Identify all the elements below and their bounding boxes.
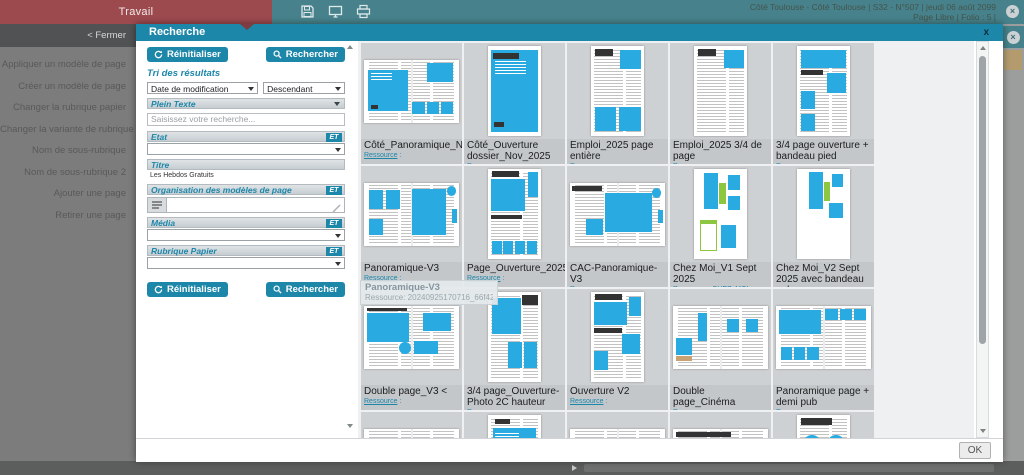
template-label: 3/4 page ouverture + bandeau piedRessour… [773,139,874,164]
preview-block [495,61,526,75]
template-card[interactable]: Panoramique page + demi pubRessource : [773,289,874,410]
sidebar-close-button[interactable]: < Fermer [0,24,136,47]
preview-block [386,190,400,209]
bottom-scrollbar [0,461,1024,475]
preview-block [698,313,708,341]
template-card[interactable]: CAC-Panoramique-V3Ressource : [567,166,668,287]
save-icon[interactable] [300,4,316,20]
preview-block [676,356,692,361]
template-card[interactable]: Page_Ouverture_2025Ressource : [464,166,565,287]
sidebar-item[interactable]: Changer la rubrique papier [0,97,136,119]
ressource-link[interactable]: Ressource : [570,285,665,287]
preview-block [704,173,718,209]
template-name: CAC-Panoramique-V3 [570,263,657,285]
preview-block [801,91,815,109]
template-results-grid: Côté_Panoramique_NovRessource :Côté_Ouve… [358,41,974,438]
preview-block [700,220,717,251]
preview-block [412,102,424,113]
refresh-icon [154,50,163,59]
template-label: Côté_Ouverture dossier_Nov_2025Ressource… [464,139,565,164]
close-app-icon[interactable]: × [1006,5,1019,18]
print-icon[interactable] [356,4,372,20]
preview-block [746,319,757,332]
dialog-footer: OK [136,438,1003,462]
display-icon[interactable] [328,4,344,20]
rubrique-select[interactable] [147,257,345,269]
tab-travail[interactable]: Travail [0,0,272,24]
preview-block [809,172,823,210]
preview-block [801,50,847,68]
template-preview [567,43,668,139]
chevron-down-icon [335,87,341,91]
preview-block [572,186,602,190]
template-preview [361,412,462,438]
template-name: Emploi_2025 page entière [570,140,653,162]
recherche-dialog: Recherche x Réinitialiser Rechercher Tri… [136,24,1003,461]
template-name: Chez Moi_V1 Sept 2025 [673,263,756,285]
sidebar-item[interactable]: Changer la variante de rubrique [0,119,136,141]
preview-block [527,241,537,254]
etat-select[interactable] [147,143,345,155]
template-name: Double page_V3 < [364,386,447,397]
template-card[interactable]: Ouverture V2Ressource : [567,289,668,410]
ressource-link[interactable]: Ressource : [570,397,665,406]
preview-block [594,328,622,333]
preview-block [515,241,525,254]
preview-block [827,73,846,93]
preview-block [524,342,538,367]
document-context-info: Côté Toulouse - Côté Toulouse | S32 - N°… [750,2,996,22]
section-media[interactable]: MédiaET [147,217,345,228]
template-name: Chez Moi_V2 Sept 2025 avec bandeau pub [776,263,864,287]
preview-block [369,190,383,209]
chevron-down-icon [335,234,341,238]
preview-block [427,102,439,113]
preview-block [594,302,626,325]
preview-block [840,309,852,320]
preview-block [728,196,740,210]
wand-icon[interactable] [332,200,342,218]
scrollbar-thumb[interactable] [979,56,986,344]
operator-badge[interactable]: ET [326,219,342,228]
template-card[interactable]: Chez Moi_V1 Sept 2025Ressource : CHEZ_MO… [670,166,771,287]
preview-block [676,338,692,354]
template-preview [670,166,771,262]
sidebar-menu: Appliquer un modèle de pageCréer un modè… [0,47,136,226]
template-label: 3/4 page_Ouverture-Photo 2C hauteurResso… [464,385,565,410]
template-name: Panoramique page + demi pub [776,386,869,408]
preview-block [423,313,452,331]
titre-value: Les Hebdos Gratuits [147,172,345,180]
template-tooltip: Panoramique-V3 Ressource: 20240925170716… [360,280,498,305]
preview-block [825,309,837,320]
template-label: Côté_Panoramique_NovRessource : [361,139,462,164]
operator-badge[interactable]: ET [326,186,342,195]
preview-block [367,313,409,342]
template-name: Panoramique-V3 [364,263,439,274]
template-preview [361,166,462,262]
close-icon: × [1007,31,1020,44]
background-panel [1003,24,1024,461]
template-label: Panoramique page + demi pubRessource : [773,385,874,410]
section-etat[interactable]: EtatET [147,131,345,142]
section-titre[interactable]: Titre [147,159,345,170]
preview-block [595,294,623,300]
preview-block [399,342,410,354]
preview-block [441,102,453,113]
template-preview [361,43,462,139]
template-card[interactable]: Emploi_2025 page entièreRessource : [567,43,668,164]
preview-block [595,107,617,130]
ressource-link[interactable]: Ressource : [673,408,768,410]
preview-block [620,50,641,70]
preview-block [658,210,663,223]
preview-block [622,334,641,354]
section-rubrique[interactable]: Rubrique PapierET [147,245,345,256]
ressource-link[interactable]: Ressource : CHEZ_MOI [673,285,768,287]
panel-scroll-up-icon[interactable] [347,45,353,49]
preview-block [794,347,805,360]
template-preview [464,43,565,139]
tooltip-ressource: Ressource: 20240925170716_66f4272 [365,293,493,302]
fulltext-search-input[interactable] [147,113,345,126]
preview-block [522,295,537,306]
preview-block [586,219,603,235]
preview-block [492,171,520,177]
template-card[interactable] [464,412,565,438]
preview-block [832,174,843,187]
sidebar-item[interactable]: Nom de sous-rubrique [0,140,136,162]
search-icon [273,50,282,59]
sidebar-item[interactable]: Retirer une page [0,205,136,227]
preview-block [605,193,652,232]
preview-block [829,203,842,218]
reset-button[interactable]: Réinitialiser [147,47,228,62]
sort-field-select[interactable]: Date de modification [147,82,258,94]
preview-block [508,342,522,367]
template-preview [773,166,874,262]
section-fulltext[interactable]: Plein Texte [147,98,345,109]
ressource-link[interactable]: Ressource : [364,397,459,406]
reset-button-bottom[interactable]: Réinitialiser [147,282,228,297]
preview-block [854,309,866,320]
sort-section-title: Tri des résultats [147,68,345,79]
chevron-down-icon [335,262,341,266]
template-preview [567,166,668,262]
preview-block [724,50,744,68]
template-preview [773,43,874,139]
dialog-header: Recherche x [136,24,1003,41]
ressource-link[interactable]: Ressource : [570,162,665,164]
template-preview [464,166,565,262]
sidebar-item[interactable]: Nom de sous-rubrique 2 [0,162,136,184]
preview-block [801,70,823,75]
preview-block [427,63,454,82]
template-card[interactable] [361,412,462,438]
organisation-input[interactable] [167,197,345,213]
search-button-bottom[interactable]: Rechercher [266,282,345,297]
ressource-link[interactable]: Ressource : [776,162,871,164]
template-preview [567,289,668,385]
sidebar-item[interactable]: Ajouter une page [0,183,136,205]
section-organisation[interactable]: Organisation des modèles de pageET [147,184,345,195]
template-preview [464,412,565,438]
organisation-picker [147,197,345,213]
template-preview [670,43,771,139]
template-card[interactable]: Panoramique-V3Ressource : [361,166,462,287]
template-name: Double page_Cinéma [673,386,735,408]
template-label: Double page_CinémaRessource : [670,385,771,410]
operator-badge[interactable]: ET [326,247,342,256]
preview-block [494,122,505,127]
template-name: Ouverture V2 [570,386,629,397]
preview-block [619,107,641,130]
preview-block [447,186,457,196]
media-select[interactable] [147,229,345,241]
preview-block [369,219,383,235]
preview-block [414,341,438,354]
template-label: Emploi_2025 3/4 de pageRessource : [670,139,771,164]
template-preview [773,289,874,385]
ressource-link[interactable]: Ressource : [467,162,562,164]
preview-block [781,347,792,360]
template-name: 3/4 page ouverture + bandeau pied [776,140,869,162]
preview-block [367,308,407,311]
scroll-down-icon[interactable] [980,429,986,433]
template-card[interactable]: Double page_V3 <Ressource : [361,289,462,410]
preview-block [594,351,608,371]
tooltip-title: Panoramique-V3 [365,283,493,293]
context-line2: Page Libre | Folio : 5 | [750,12,996,22]
template-preview [773,412,874,438]
preview-block [676,432,731,436]
template-card[interactable]: Emploi_2025 3/4 de pageRessource : [670,43,771,164]
preview-block [595,49,613,56]
ressource-link[interactable]: Ressource : [467,408,562,410]
template-name: 3/4 page_Ouverture-Photo 2C hauteur [467,386,559,408]
preview-block [719,183,726,205]
template-name: Page_Ouverture_2025 [467,263,565,274]
refresh-icon [154,285,163,294]
preview-block [824,182,830,202]
panel-close-button[interactable]: × [1002,26,1024,48]
template-preview [670,289,771,385]
template-card[interactable]: Côté_Ouverture dossier_Nov_2025Ressource… [464,43,565,164]
template-card[interactable] [567,412,668,438]
preview-block [629,297,641,317]
template-card[interactable]: Chez Moi_V2 Sept 2025 avec bandeau pubRe… [773,166,874,287]
panel-scroll-down-icon[interactable] [347,424,353,428]
preview-block [371,105,379,109]
template-label: Chez Moi_V1 Sept 2025Ressource : CHEZ_MO… [670,262,771,287]
preview-block [807,347,818,360]
template-card[interactable] [670,412,771,438]
preview-block [801,114,815,130]
operator-badge[interactable]: ET [326,133,342,142]
scroll-up-icon[interactable] [980,46,986,50]
template-card[interactable]: 3/4 page_Ouverture-Photo 2C hauteurResso… [464,289,565,410]
preview-block [452,209,457,223]
sort-order-select[interactable]: Descendant [263,82,345,94]
ok-button[interactable]: OK [959,442,991,459]
sidebar-item[interactable]: Créer un modèle de page [0,76,136,98]
template-preview [670,412,771,438]
chevron-down-icon [248,87,254,91]
template-card[interactable]: Double page_CinémaRessource : [670,289,771,410]
chevron-down-icon [335,148,341,152]
ressource-link[interactable]: Ressource : [364,151,459,160]
ressource-link[interactable]: Ressource : [673,162,768,164]
search-button[interactable]: Rechercher [266,47,345,62]
preview-block [721,225,737,248]
ressource-link[interactable]: Ressource : [776,408,871,410]
preview-block [728,175,740,189]
preview-block [652,188,662,198]
chevron-down-icon [334,102,340,106]
search-filter-panel: Réinitialiser Rechercher Tri des résulta… [140,41,354,438]
preview-block [491,179,524,211]
work-sidebar: < Fermer Appliquer un modèle de pageCrée… [0,24,136,461]
dialog-title: Recherche [149,26,205,38]
template-card[interactable]: 3/4 page ouverture + bandeau piedRessour… [773,43,874,164]
template-label: CAC-Panoramique-V3Ressource : [567,262,668,287]
template-label: Double page_V3 <Ressource : [361,385,462,410]
template-card[interactable]: Côté_Panoramique_NovRessource : [361,43,462,164]
list-icon[interactable] [147,197,167,213]
top-toolbar: Travail Côté Toulouse - Côté Toulouse | … [0,0,1024,24]
background-swatch [1004,50,1022,70]
sidebar-item[interactable]: Appliquer un modèle de page [0,54,136,76]
preview-block [495,419,510,424]
template-name: Emploi_2025 3/4 de page [673,140,762,162]
preview-block [528,172,538,197]
template-name: Côté_Ouverture dossier_Nov_2025 [467,140,550,162]
horizontal-scroll-track[interactable] [584,464,994,472]
search-icon [273,285,282,294]
dialog-close-button[interactable]: x [983,24,989,41]
tab-pointer [240,24,254,30]
template-preview [567,412,668,438]
preview-block [371,73,392,82]
preview-block [801,418,832,425]
preview-block [727,319,738,332]
preview-block [698,49,716,56]
template-card[interactable] [773,412,874,438]
template-name: Côté_Panoramique_Nov [364,140,462,151]
scroll-right-icon[interactable] [572,465,577,471]
preview-block [493,53,518,58]
preview-block [412,189,445,236]
preview-block [491,215,522,220]
template-label: Ouverture V2Ressource : [567,385,668,410]
preview-block [492,241,502,254]
preview-block [503,241,513,254]
template-label: Chez Moi_V2 Sept 2025 avec bandeau pubRe… [773,262,874,287]
preview-block [779,310,821,334]
template-label: Emploi_2025 page entièreRessource : [567,139,668,164]
context-line1: Côté Toulouse - Côté Toulouse | S32 - N°… [750,2,996,12]
results-scrollbar [976,41,989,438]
